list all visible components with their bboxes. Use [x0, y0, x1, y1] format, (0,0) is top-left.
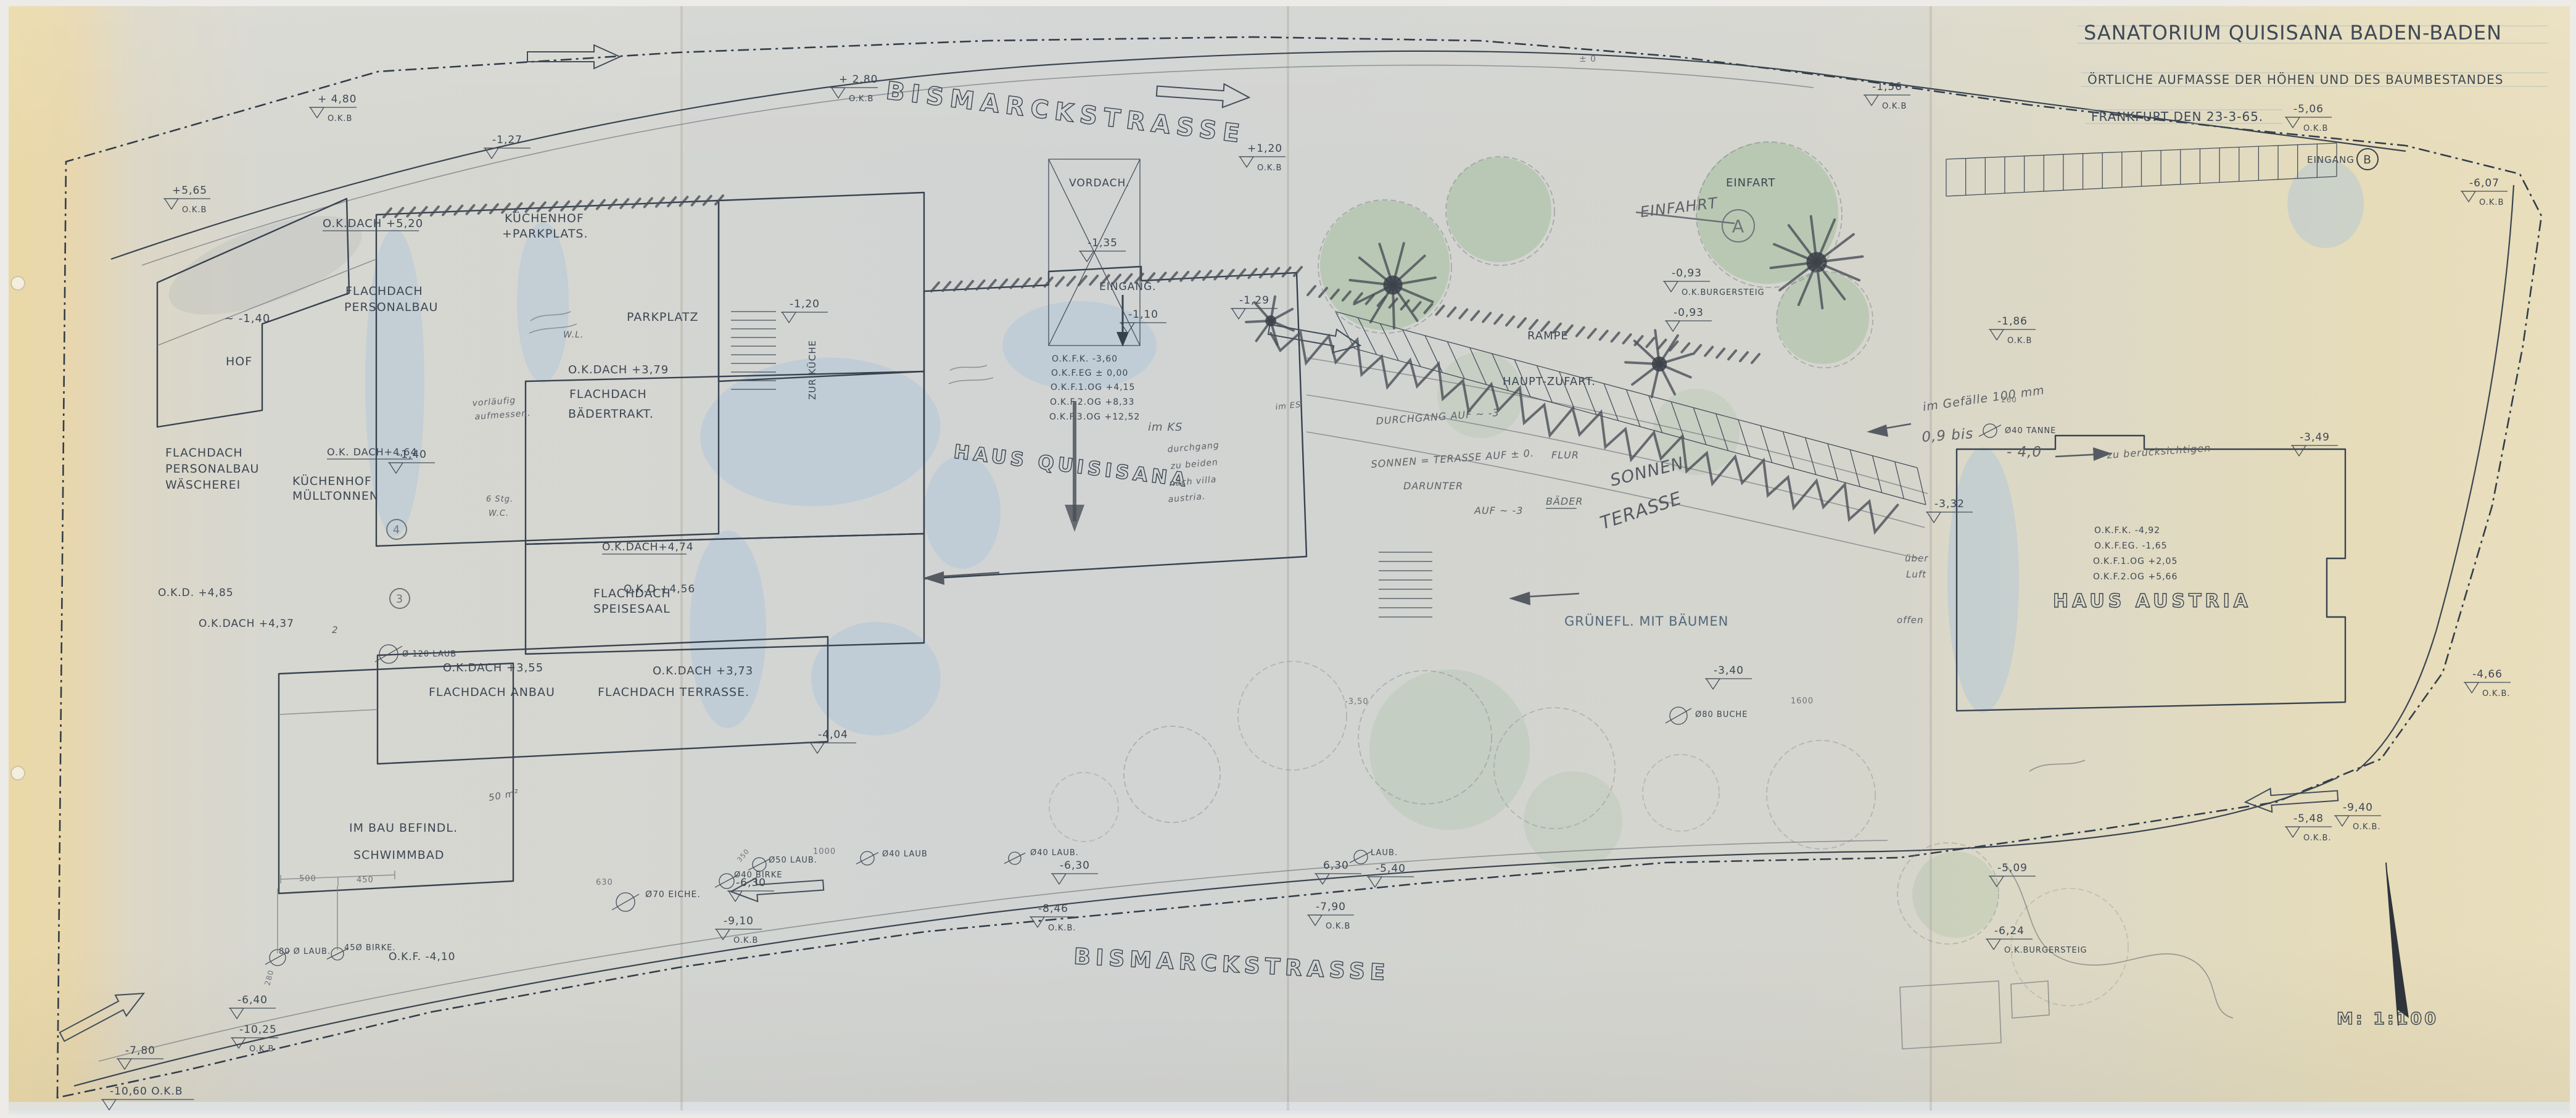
level-value: -6,07 — [2469, 177, 2500, 189]
level-value: -1,86 — [1997, 315, 2028, 328]
plan-label: KÜCHENHOF — [292, 474, 372, 488]
plan-label: 6 Stg. — [486, 495, 513, 504]
sheet-title: SANATORIUM QUISISANA BADEN-BADEN — [2084, 21, 2502, 44]
level-value: -1,10 — [1128, 308, 1158, 321]
level-value: -3,32 — [1934, 498, 1965, 510]
level-reference: O.K.B — [2007, 336, 2032, 346]
level-reference: O.K.B — [733, 936, 758, 945]
plan-label: AUF ~ -3 — [1474, 505, 1523, 516]
level-reference: O.K.BURGERSTEIG — [1682, 288, 1765, 297]
level-value: -0,93 — [1672, 267, 1702, 279]
level-value: -6,30 — [1060, 859, 1090, 872]
circled-mark-char: 4 — [393, 524, 400, 537]
scanned-site-plan-sheet: SANATORIUM QUISISANA BADEN-BADEN ÖRTLICH… — [0, 0, 2576, 1118]
plan-label: W.L. — [563, 330, 584, 340]
level-value: -1,56 — [1872, 81, 1902, 93]
plan-label: Ø40 LAUB. — [1030, 848, 1079, 858]
plan-label: -3,50 — [1345, 697, 1369, 706]
plan-label: ± 0 — [1579, 54, 1596, 64]
level-reference: O.K.B. — [2482, 689, 2511, 698]
plan-label: Luft — [1906, 569, 1926, 580]
plan-label: MÜLLTONNEN — [292, 489, 379, 503]
level-value: -6,24 — [1994, 925, 2025, 937]
plan-label: im KS — [1148, 421, 1183, 434]
plan-label: 1000 — [813, 847, 836, 856]
level-reference: O.K.B — [1257, 164, 1282, 173]
plan-label: O.K.F.EG. -1,65 — [2094, 541, 2168, 551]
plan-label: EINFART — [1726, 176, 1775, 189]
level-value: -6,40 — [237, 994, 268, 1006]
level-value: -8,46 — [1038, 903, 1068, 915]
plan-label: O.K.DACH +3,55 — [443, 661, 543, 674]
plan-label: PERSONALBAU — [165, 462, 259, 476]
plan-label: O.K.F.EG ± 0,00 — [1051, 368, 1128, 378]
level-value: +5,65 — [172, 184, 207, 197]
plan-label: O.K.F.3.OG +12,52 — [1049, 412, 1140, 422]
plan-label: KÜCHENHOF — [505, 211, 584, 225]
level-value: -10,25 — [239, 1024, 277, 1036]
plan-label: PARKPLATZ — [627, 310, 699, 324]
plan-label: RAMPE — [1527, 329, 1569, 342]
punch-hole — [11, 276, 25, 290]
plan-label: FLACHDACH — [569, 387, 647, 401]
plan-label: EINGANG — [2307, 154, 2355, 165]
level-value: -1,20 — [790, 298, 820, 310]
plan-label: O.K.DACH+4,74 — [602, 541, 694, 553]
plan-label: O.K.DACH +5,20 — [323, 217, 423, 230]
punch-hole — [11, 766, 25, 780]
plan-label: BÄDER — [1546, 495, 1583, 507]
level-reference: O.K.B — [328, 114, 352, 123]
level-value: -5,40 — [1376, 863, 1406, 875]
level-reference: O.K.B — [1326, 922, 1350, 931]
level-value: -3,40 — [1714, 665, 1744, 677]
plan-label: Ø 120 LAUB — [402, 650, 456, 659]
level-reference: O.K.B. — [2353, 822, 2381, 832]
level-reference: O.K.B. — [2303, 834, 2332, 843]
plan-label: offen — [1897, 615, 1923, 626]
plan-label: 80 Ø LAUB. — [279, 947, 331, 956]
sheet-subtitle: ÖRTLICHE AUFMASSE DER HÖHEN UND DES BAUM… — [2087, 72, 2504, 87]
plan-label: O.K.F.2.OG +8,33 — [1050, 397, 1134, 407]
plan-label: HAUPT-ZUFART. — [1503, 375, 1596, 388]
plan-label: O.K.F.K. -4,92 — [2094, 526, 2160, 536]
plan-label: O.K.DACH +4,37 — [199, 618, 294, 630]
level-value: -1,35 — [1088, 237, 1118, 249]
plan-label: Ø70 EICHE. — [645, 890, 701, 900]
plan-label: Ø50 LAUB. — [769, 856, 817, 865]
plan-label: DARUNTER — [1403, 480, 1463, 492]
level-value: -1,27 — [492, 134, 522, 146]
level-reference: O.K.B — [182, 205, 207, 215]
plan-label: +PARKPLATS. — [502, 227, 588, 241]
level-value: -6,30 — [736, 877, 766, 889]
plan-label: Ø40 TANNE — [2005, 426, 2056, 436]
plan-label: 1600 — [1791, 697, 1814, 706]
plan-label: 45Ø BIRKE. — [344, 943, 396, 953]
plan-label: WÄSCHEREI — [165, 478, 241, 492]
level-value: -7,90 — [1316, 901, 1346, 913]
level-value: 6,30 — [1323, 859, 1349, 872]
circled-mark-char: A — [1732, 216, 1745, 237]
site-plan-drawing: SANATORIUM QUISISANA BADEN-BADEN ÖRTLICH… — [0, 0, 2576, 1118]
level-value: -3,49 — [2300, 431, 2330, 444]
level-value: -5,48 — [2293, 813, 2324, 825]
circled-mark-char: B — [2363, 154, 2372, 167]
plan-label: FLACHDACH ANBAU — [429, 685, 555, 699]
plan-label: GRÜNEFL. MIT BÄUMEN — [1564, 613, 1728, 629]
level-value: -9,40 — [2343, 801, 2373, 814]
plan-label: O.K.D +4,56 — [624, 583, 695, 595]
level-value: -10,60 O.K.B — [110, 1085, 183, 1098]
level-reference: O.K.B — [1882, 102, 1907, 111]
level-value: +1,20 — [1247, 143, 1282, 155]
plan-label: VORDACH. — [1069, 177, 1129, 189]
plan-label: FLACHDACH TERRASSE. — [598, 685, 749, 699]
plan-label: O.K.DACH +3,73 — [653, 665, 753, 677]
level-reference: O.K.B — [2479, 198, 2504, 207]
level-value: -4,04 — [818, 729, 848, 741]
plan-label: O.K.D. +4,85 — [158, 587, 234, 599]
level-value: -9,10 — [724, 915, 754, 927]
plan-label: O.K.DACH +3,79 — [568, 363, 669, 376]
level-value: -1,29 — [1239, 294, 1269, 307]
plan-label: IM BAU BEFINDL. — [349, 821, 458, 835]
level-value: -5,09 — [1997, 862, 2028, 874]
plan-label: SPEISESAAL — [593, 602, 671, 616]
sheet-date-line: FRANKFURT DEN 23-3-65. — [2091, 109, 2263, 124]
plan-label: 450 — [357, 876, 374, 885]
plan-label: über — [1905, 553, 1928, 564]
building-name-austria: HAUS AUSTRIA — [2053, 590, 2252, 612]
plan-label: FLACHDACH — [165, 446, 243, 460]
plan-label: O.K.F.2.OG +5,66 — [2093, 572, 2178, 582]
circled-mark-char: 3 — [396, 594, 403, 606]
plan-label: LAUB. — [1371, 848, 1398, 858]
level-reference: O.K.B — [849, 94, 873, 104]
plan-label: 2 — [332, 624, 339, 636]
plan-label: - 4,0 — [2007, 444, 2042, 460]
plan-label: Ø40 LAUB — [882, 850, 928, 859]
level-value: + 2,80 — [839, 73, 878, 86]
plan-label: ZUR KÜCHE — [806, 340, 818, 400]
plan-label: O.K.F.K. -3,60 — [1052, 354, 1118, 364]
level-value: -0,93 — [1674, 307, 1704, 319]
scale-label: M: 1:100 — [2337, 1009, 2438, 1029]
level-reference: O.K.B. — [1048, 924, 1076, 933]
level-value: -7,80 — [125, 1045, 155, 1057]
plan-label: Ø80 BUCHE — [1695, 710, 1748, 719]
level-reference: O.K.BURGERSTEIG — [2004, 946, 2087, 955]
plan-label: PERSONALBAU — [344, 300, 438, 314]
plan-label: O.K.F.1.OG +2,05 — [2093, 557, 2178, 566]
level-value: -4,66 — [2472, 668, 2503, 681]
plan-label: BÄDERTRAKT. — [568, 407, 654, 421]
plan-label: SCHWIMMBAD — [353, 848, 444, 862]
level-reference: O.K.B — [249, 1045, 274, 1054]
level-value: -1,40 — [397, 449, 427, 461]
level-reference: O.K.B — [2303, 124, 2328, 133]
plan-label: ~ -1,40 — [225, 312, 270, 325]
plan-label: O.K.F.1.OG +4,15 — [1051, 383, 1135, 392]
level-value: + 4,80 — [318, 93, 357, 106]
plan-label: FLUR — [1551, 449, 1579, 461]
level-value: -5,06 — [2293, 103, 2324, 115]
plan-label: W.C. — [489, 509, 509, 518]
plan-label: FLACHDACH — [345, 284, 423, 298]
plan-label: HOF — [226, 355, 252, 368]
plan-label: 630 — [596, 878, 613, 887]
plan-label: O.K.F. -4,10 — [389, 951, 456, 963]
